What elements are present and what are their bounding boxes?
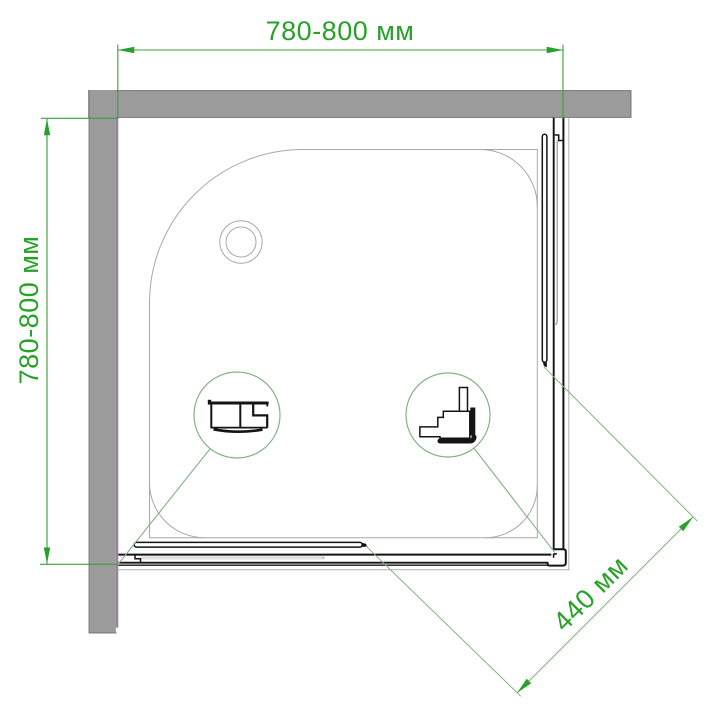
svg-text:780-800 мм: 780-800 мм [266,16,415,46]
svg-text:780-800 мм: 780-800 мм [14,236,44,385]
